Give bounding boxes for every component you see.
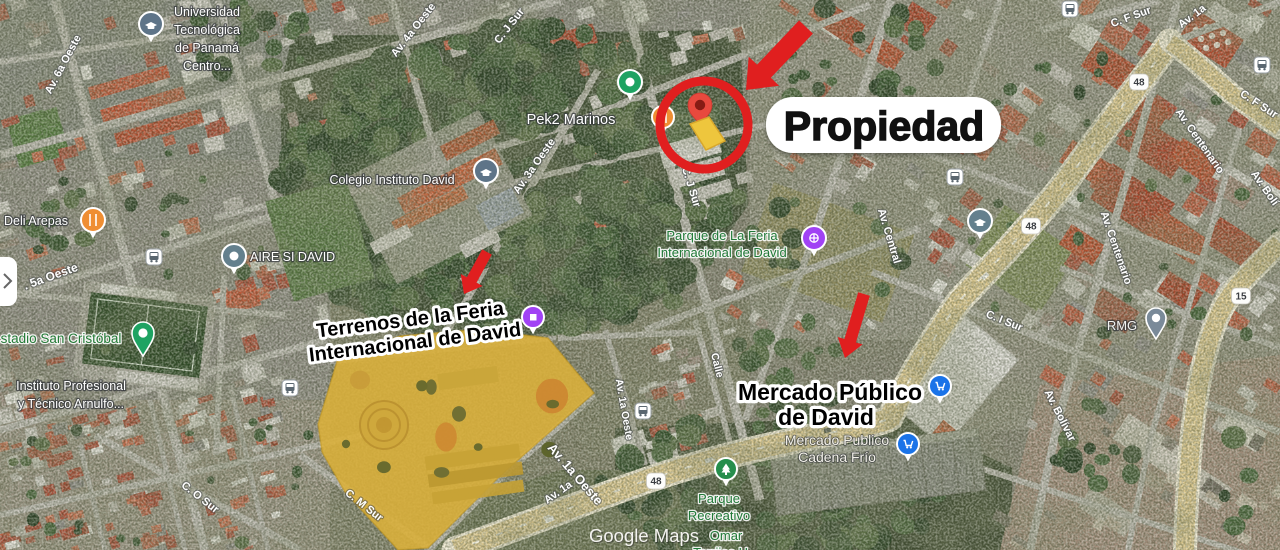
svg-text:Torrijos H...: Torrijos H... xyxy=(693,545,759,550)
svg-text:Propiedad: Propiedad xyxy=(784,103,984,149)
svg-text:Cadena Frío: Cadena Frío xyxy=(798,449,876,465)
svg-text:RMG: RMG xyxy=(1107,318,1137,333)
svg-text:Parque de La Feria: Parque de La Feria xyxy=(666,228,778,243)
svg-text:Parque: Parque xyxy=(698,491,740,506)
svg-text:Colegio Instituto David: Colegio Instituto David xyxy=(329,173,454,187)
svg-text:AIRE SI DAVID: AIRE SI DAVID xyxy=(250,250,335,264)
svg-text:y Técnico Arnulfo...: y Técnico Arnulfo... xyxy=(18,397,124,411)
svg-text:Mercado Publico: Mercado Publico xyxy=(785,432,889,448)
svg-text:Universidad: Universidad xyxy=(174,5,240,19)
svg-text:Centro...: Centro... xyxy=(183,59,231,73)
svg-text:Internacional de David: Internacional de David xyxy=(657,245,786,260)
svg-text:de Panamá: de Panamá xyxy=(175,41,239,55)
svg-text:stadio San Cristóbal: stadio San Cristóbal xyxy=(1,331,122,346)
svg-text:48: 48 xyxy=(650,477,662,488)
svg-text:de David: de David xyxy=(778,404,874,430)
svg-text:Instituto Profesional: Instituto Profesional xyxy=(16,379,126,393)
svg-text:48: 48 xyxy=(1133,78,1145,89)
svg-text:48: 48 xyxy=(1025,222,1037,233)
svg-text:Deli Arepas: Deli Arepas xyxy=(4,214,68,228)
svg-text:Recreativo: Recreativo xyxy=(688,508,750,523)
svg-text:Google Maps: Google Maps xyxy=(589,525,699,546)
svg-text:15: 15 xyxy=(1235,292,1247,303)
svg-text:Pek2 Marinos: Pek2 Marinos xyxy=(527,112,616,128)
svg-text:Mercado Público: Mercado Público xyxy=(738,379,922,405)
svg-text:Omar: Omar xyxy=(710,528,743,543)
svg-text:Tecnológica: Tecnológica xyxy=(174,23,240,37)
